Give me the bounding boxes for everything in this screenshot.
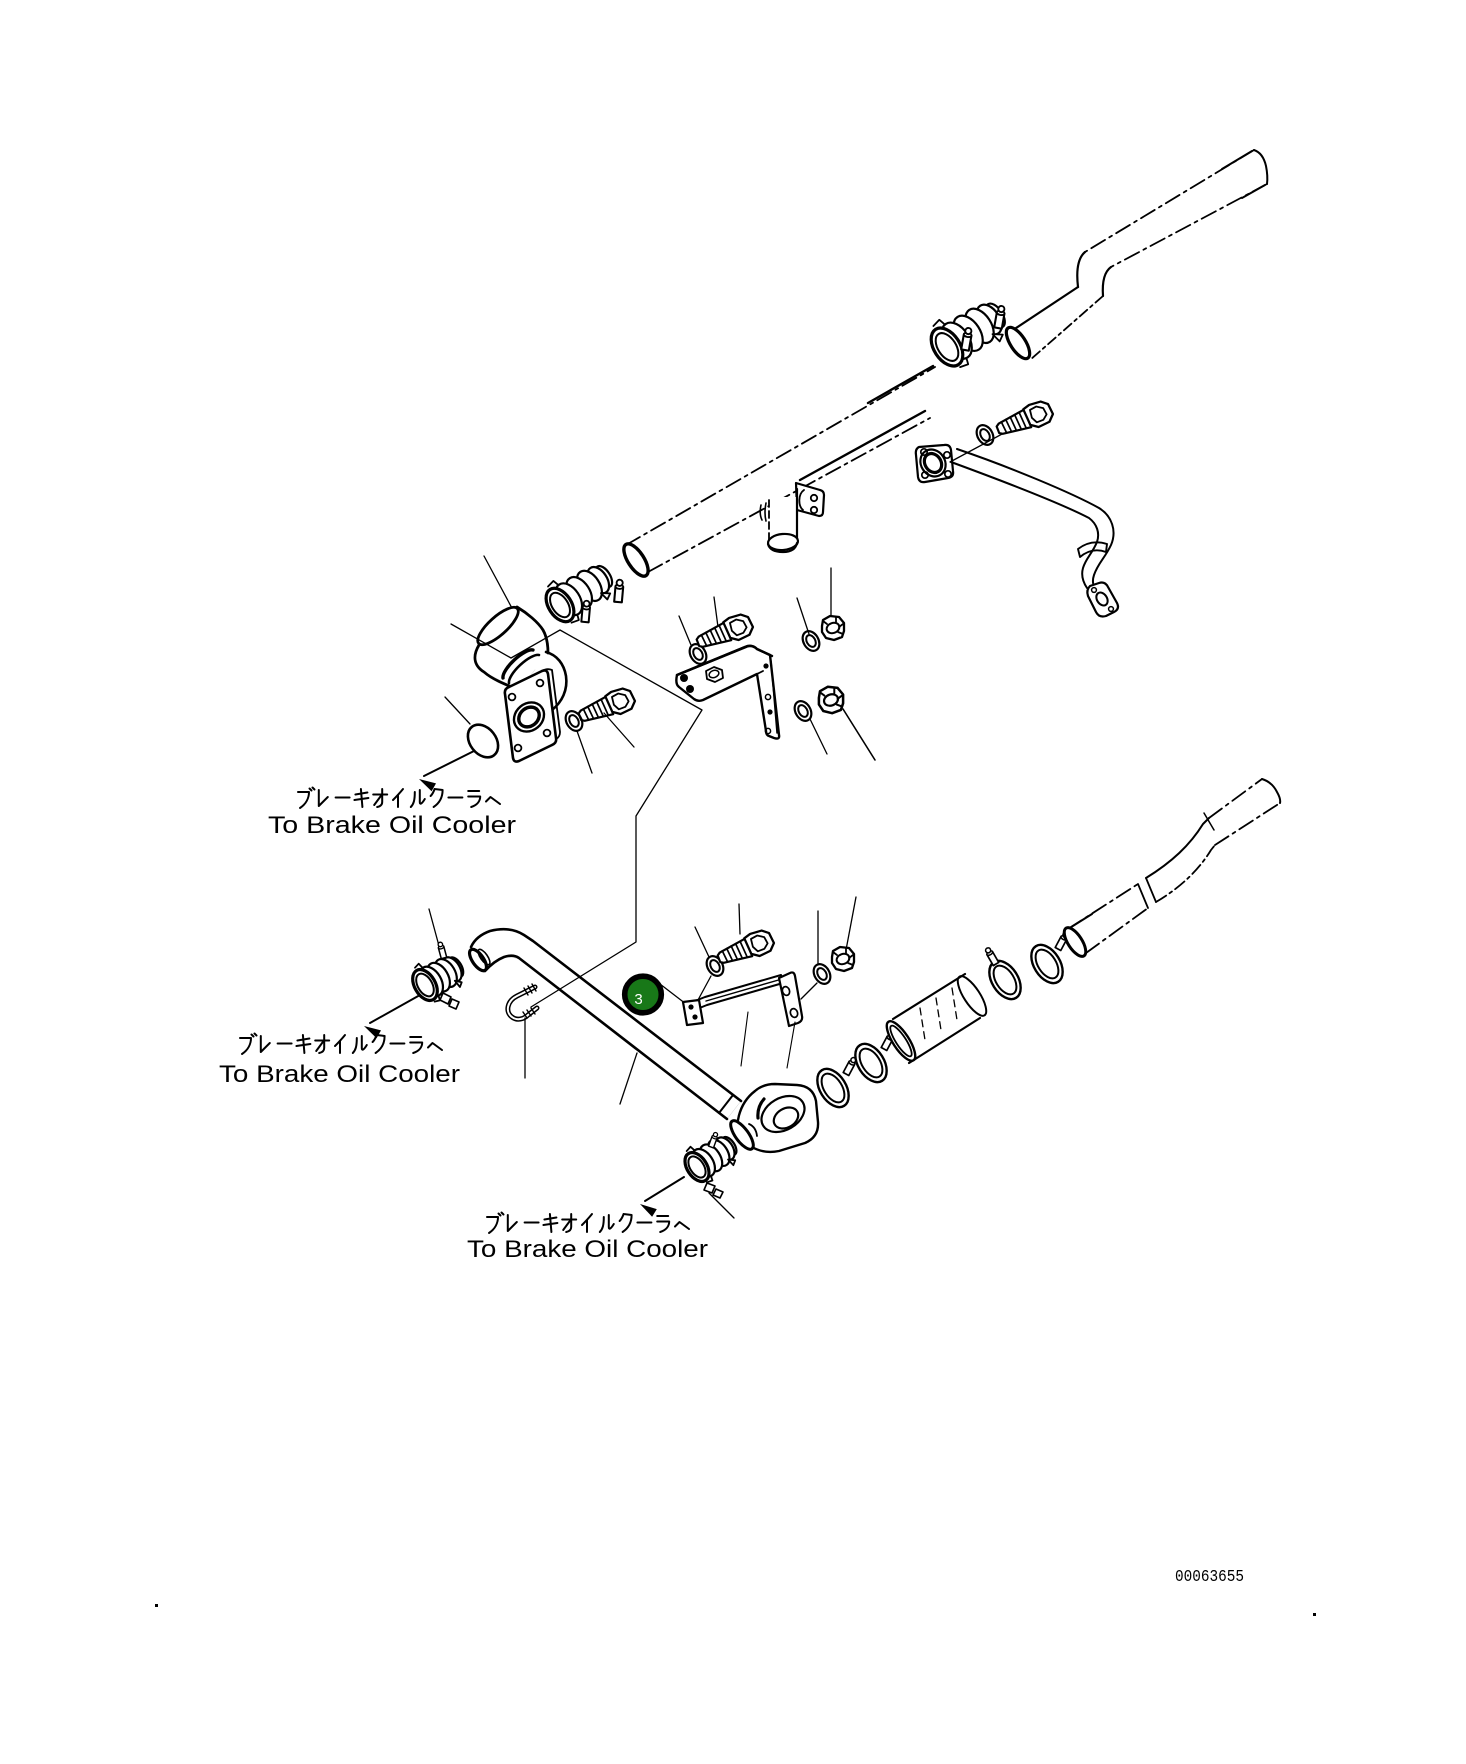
svg-text:00063655: 00063655 <box>1175 1568 1244 1587</box>
svg-text:To Brake Oil Cooler: To Brake Oil Cooler <box>219 1061 460 1088</box>
svg-text:3: 3 <box>634 991 642 1008</box>
svg-text:To Brake Oil Cooler: To Brake Oil Cooler <box>467 1236 708 1263</box>
svg-text:To Brake Oil Cooler: To Brake Oil Cooler <box>268 812 516 839</box>
